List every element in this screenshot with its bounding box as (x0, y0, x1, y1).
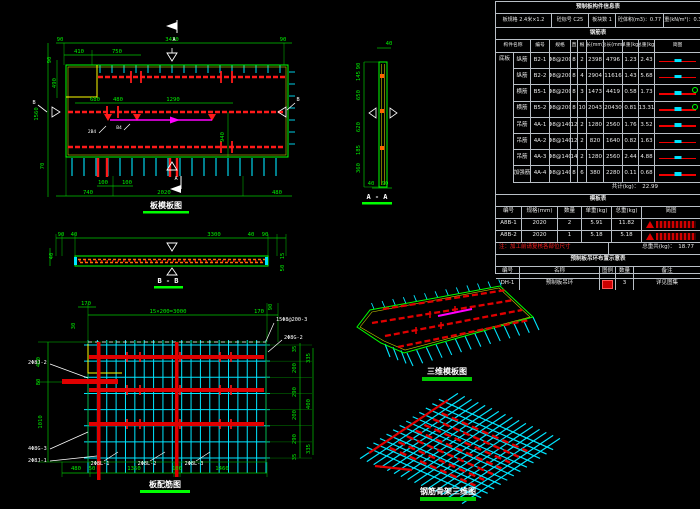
dim-label: 200 (292, 363, 298, 373)
protruding-bar (504, 325, 510, 338)
protruding-bar (407, 353, 413, 366)
rebar-table-header: 构件名称 编号 规格 直 根 长(mm) 总长(mm) 单重(kg) 总重(kg… (496, 40, 700, 53)
rebar-vertical (175, 342, 179, 477)
edge-tick (393, 299, 396, 305)
group-cell: 底板 (496, 53, 514, 183)
cad-canvas: 90 3430 90 410 750 90 490 1560 70 680 48… (0, 0, 700, 509)
rebar-row (385, 310, 522, 336)
dim-label: 410 (74, 49, 84, 55)
table-row: 纵筋B2-2Φ8@200842904116161.435.68 (514, 69, 700, 85)
col-header: 长(mm) (587, 40, 604, 52)
table-row: 加强筋4A-4Φ8@1408638022800.110.68 (514, 166, 700, 182)
section-aa-drawing: 40 90 145 650 620 185 360 40 90 A - A (356, 41, 397, 205)
edge-tick (382, 301, 385, 307)
dim-label: 90 (280, 37, 287, 43)
protruding-bar (533, 317, 539, 330)
section-bb-drawing: 90 40 3300 40 90 40 15 50 B - B (49, 232, 286, 289)
dim-label: 335 (306, 353, 312, 363)
rebar-shape-diagram (655, 166, 700, 181)
dim-label: 200 (292, 410, 298, 420)
total-value: 18.77 (678, 245, 694, 251)
dim-label: 3300 (207, 232, 220, 238)
edge-tick (372, 303, 375, 309)
title-underline (420, 497, 476, 501)
col-header: 单重(kg) (623, 40, 639, 52)
section-arrow (166, 22, 177, 30)
protruding-bar (514, 323, 520, 336)
dim-label: 15×200=3000 (149, 309, 186, 315)
notch-outline (66, 65, 97, 97)
param-cell: 板块数 1 (589, 14, 616, 27)
section-letter: B (296, 97, 299, 103)
rebar-callout: 2Φ8L-1 (91, 461, 110, 467)
parameter-row: 板规格 2.4米×1.2 砼标号 C25 板块数 1 砼体积(m3)：0.77 … (496, 14, 700, 28)
drawing-title: 板配筋图 (149, 479, 181, 489)
dim-label: 1560 (34, 107, 40, 120)
rebar-shape-diagram (655, 69, 700, 84)
centerline-symbol (167, 243, 177, 251)
embed-tag: 2B4 (88, 129, 97, 135)
formwork-plan-drawing: 90 3430 90 410 750 90 490 1560 70 680 48… (32, 20, 299, 214)
edge-tick (488, 282, 491, 288)
centerline-symbol (167, 268, 177, 275)
rebar-callout: 15Φ8@200-3 (276, 317, 307, 323)
dim-label: 1010 (38, 415, 44, 428)
dim-label: 740 (83, 190, 93, 196)
end-mark (74, 257, 77, 265)
section-marker (52, 107, 60, 117)
drawing-title: A - A (366, 193, 388, 201)
warning-triangle-icon (646, 221, 654, 228)
formwork-table-band: 模板表 (496, 195, 700, 207)
dim-label: 40 (49, 253, 55, 260)
dim-label: 170 (254, 309, 264, 315)
table-title: 预制板构件信息表 (496, 2, 700, 14)
dim-label: 90 (47, 57, 53, 64)
rebar-row (398, 442, 484, 480)
title-underline (362, 202, 392, 205)
rebar-shape-diagram (655, 150, 700, 165)
centerline-symbol (369, 108, 376, 118)
total-value: 22.99 (642, 185, 658, 191)
dim-label: 90 (58, 232, 65, 238)
centerline-symbol (390, 108, 397, 118)
table-row: DH-1 预制板吊环 3 详见图集 (496, 279, 700, 290)
dim-label: 35 (292, 454, 298, 461)
iso-formwork-drawing: 三维模板图 (357, 280, 539, 381)
rebar-table-body: 底板 纵筋B2-1Φ8@20082239847961.232.43 纵筋B2-2… (496, 53, 700, 183)
rebar-row (372, 300, 514, 323)
protruding-bar (436, 345, 442, 358)
dim-label: 145 (356, 71, 362, 81)
protruding-bar (417, 350, 423, 363)
rebar-row (407, 436, 493, 474)
dim-label: 2020 (157, 190, 170, 196)
drawing-title: 板模板图 (150, 200, 182, 210)
table-row: A8B-2202015.185.18 (496, 231, 700, 243)
edge-tick (425, 293, 428, 299)
formwork-table-header: 编号规格(mm)数量单重(kg)总重(kg)简图 (496, 207, 700, 219)
dim-label: 400 (306, 399, 312, 409)
protruding-bar (494, 328, 500, 341)
rebar-shape-diagram (655, 118, 700, 133)
rebar-callout: 2Φ8J-2 (28, 360, 47, 366)
title-underline (154, 286, 183, 289)
dim-label: 70 (40, 163, 46, 170)
col-header: 直 (571, 40, 578, 52)
col-header: 总重(kg) (639, 40, 655, 52)
rebar-row (383, 290, 506, 309)
rebar-shape-diagram (655, 85, 700, 100)
note-row: 注：加工前请复核各部位尺寸 总重共(kg)：18.77 (496, 243, 700, 255)
col-header: 编号 (531, 40, 550, 52)
dim-label: 170 (81, 301, 91, 307)
red-note: 注：加工前请复核各部位尺寸 (496, 243, 609, 254)
edge-tick (435, 291, 438, 297)
hatched-note (656, 233, 696, 240)
dim-label: 1290 (166, 97, 179, 103)
dim-label: 30 (71, 323, 77, 330)
param-cell: 砼体积(m3)：0.77 (616, 14, 664, 27)
title-underline (422, 377, 472, 381)
table-row: A8B-1202025.9111.82 (496, 219, 700, 231)
table-row: 吊筋4A-3Φ8@140142128025602.444.88 (514, 150, 700, 166)
table-row: 纵筋B2-1Φ8@20082239847961.232.43 (514, 53, 700, 69)
rebar-shape-diagram (655, 102, 700, 117)
protruding-bar (446, 342, 452, 355)
protruding-bar (426, 347, 432, 360)
param-cell: 板重(kN/m²)：0.31 (664, 14, 700, 27)
col-header: 根 (578, 40, 587, 52)
rebar-section-dot (380, 146, 384, 150)
dim-label: 40 (368, 181, 375, 187)
param-cell: 砼标号 C25 (552, 14, 589, 27)
edge-tick (478, 284, 481, 290)
col-header: 规格 (550, 40, 571, 52)
edge-tick (414, 295, 417, 301)
dim-label: 100 (122, 180, 132, 186)
title-underline (140, 490, 190, 493)
dim-label: 680 (90, 97, 100, 103)
dim-label: 40 (248, 232, 255, 238)
rebar-row (398, 320, 529, 347)
centerline-symbol (167, 53, 177, 61)
iso-rebar-cage-drawing: 钢筋骨架三维图 (360, 393, 560, 503)
rebar-callout: 2Φ8J-1 (28, 458, 47, 464)
rebar-section-dot (380, 109, 384, 113)
rebar-plan-drawing: 170 15×200=3000 170 30 90 400 80 1010 35… (28, 301, 313, 493)
protruding-bar (455, 339, 461, 352)
protruding-bar (465, 336, 471, 349)
edge-tick (456, 287, 459, 293)
rebar-table-band: 钢筋表 (496, 28, 700, 40)
rebar-vertical (97, 342, 101, 480)
dim-label: 100 (172, 466, 182, 472)
embed-tag: B4 (116, 125, 122, 131)
dim-label: 480 (71, 466, 81, 472)
dim-label: 90 (356, 63, 362, 70)
dim-label: 940 (220, 132, 226, 142)
dim-label: 80 (36, 379, 42, 386)
dim-label: 650 (356, 90, 362, 100)
drawing-title: 钢筋骨架三维图 (420, 486, 476, 496)
rebar-callout: 2Φ8G-2 (284, 335, 303, 341)
dim-label: 620 (356, 122, 362, 132)
dim-label: 290 (292, 434, 298, 444)
edge-tick (467, 285, 470, 291)
dim-label: 90 (268, 304, 274, 311)
total-label: 共计(kg)： (612, 185, 639, 191)
hooks-table-band: 预制板吊环布置示意表 (496, 255, 700, 267)
rebar-callout: 2Φ8L-3 (185, 461, 204, 467)
dim-label: 90 (382, 181, 389, 187)
rebar-shape-diagram (655, 53, 700, 68)
dim-label: 750 (112, 49, 122, 55)
end-mark (265, 257, 268, 265)
tendon-arrow (170, 117, 180, 124)
dim-label: 1460 (215, 466, 228, 472)
hatched-note (656, 221, 696, 228)
dim-label: 35 (292, 346, 298, 353)
dim-label: 50 (280, 265, 286, 272)
dim-label: 480 (113, 97, 123, 103)
rebar-total-row: 共计(kg)： 22.99 (496, 183, 700, 195)
edge-tick (403, 297, 406, 303)
protruding-bar (485, 331, 491, 344)
rebar-shape-diagram (655, 134, 700, 149)
dim-label: 90 (57, 37, 64, 43)
col-header: 总长(mm) (604, 40, 623, 52)
hook-legend-icon (602, 280, 613, 289)
rebar-row (433, 419, 519, 457)
section-strip-outline (379, 62, 387, 187)
title-underline (143, 211, 189, 214)
dim-label: 335 (306, 444, 312, 454)
iso-slab-inner (360, 288, 530, 350)
dim-label: 480 (272, 190, 282, 196)
warning-triangle-icon (646, 233, 654, 240)
dim-label: 15 (280, 253, 286, 260)
table-row: 吊筋4A-1Φ8@140122128025601.763.52 (514, 118, 700, 134)
total-label: 总重共(kg)： (642, 245, 675, 251)
dim-label: 40 (71, 232, 78, 238)
section-arrow (170, 185, 181, 193)
dim-label: 490 (52, 78, 58, 88)
hooks-table-header: 编号名称图例数量备注 (496, 267, 700, 279)
drawing-title: B - B (157, 277, 178, 285)
rebar-callout: 4Φ8G-3 (28, 446, 47, 452)
rebar-callout: 2Φ8L-2 (138, 461, 157, 467)
iso-slab-outline (357, 286, 533, 353)
dim-label: 290 (292, 387, 298, 397)
table-row: 横筋B5-2Φ8@2008102043204300.8113.31 (514, 102, 700, 118)
dim-label: 360 (356, 163, 362, 173)
drawing-title: 三维模板图 (427, 366, 467, 376)
table-row: 横筋B5-1Φ8@20083147344190.581.73 (514, 85, 700, 101)
rebar-section-dot (380, 74, 384, 78)
edge-tick (446, 289, 449, 295)
dim-label: 100 (98, 180, 108, 186)
dim-label: 90 (262, 232, 269, 238)
section-letter: B (32, 100, 35, 106)
dim-label: 40 (386, 41, 393, 47)
protruding-bar (475, 334, 481, 347)
rebar-stub (62, 379, 118, 384)
table-row: 吊筋4A-2Φ8@14012282016400.821.63 (514, 134, 700, 150)
dim-label: 185 (356, 145, 362, 155)
col-header: 简图 (655, 40, 700, 52)
param-cell: 板规格 2.4米×1.2 (496, 14, 552, 27)
col-header: 构件名称 (496, 40, 531, 52)
materials-table-panel: 预制板构件信息表 板规格 2.4米×1.2 砼标号 C25 板块数 1 砼体积(… (495, 1, 700, 274)
